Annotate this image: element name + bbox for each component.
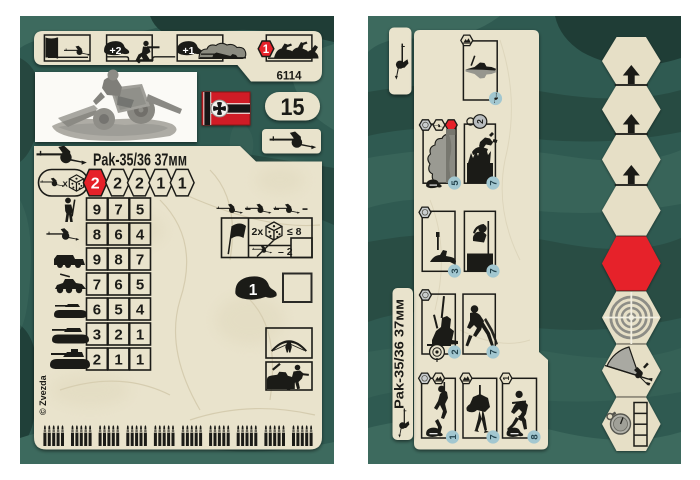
svg-text:2: 2 xyxy=(135,176,144,193)
svg-text:x: x xyxy=(63,179,69,190)
svg-text:2: 2 xyxy=(114,327,122,344)
svg-text:1: 1 xyxy=(156,176,165,193)
svg-text:2: 2 xyxy=(113,176,122,193)
svg-text:3: 3 xyxy=(93,327,101,344)
svg-text:1: 1 xyxy=(502,376,511,381)
svg-text:8: 8 xyxy=(529,434,540,439)
svg-text:1: 1 xyxy=(178,176,187,193)
svg-text:1: 1 xyxy=(263,44,270,56)
svg-text:1: 1 xyxy=(448,434,459,440)
svg-text:5: 5 xyxy=(136,202,144,219)
svg-text:2: 2 xyxy=(91,176,100,193)
svg-text:8: 8 xyxy=(114,252,122,269)
svg-text:7: 7 xyxy=(488,349,499,354)
svg-text:2: 2 xyxy=(93,352,101,369)
svg-text:≤ 8: ≤ 8 xyxy=(287,226,302,238)
svg-text:4: 4 xyxy=(136,302,145,319)
svg-text:7: 7 xyxy=(488,434,499,439)
svg-text:Pak-35/36 37мм: Pak-35/36 37мм xyxy=(93,150,187,170)
svg-text:5: 5 xyxy=(450,180,461,186)
svg-text:6: 6 xyxy=(93,302,101,319)
svg-text:9: 9 xyxy=(93,252,101,269)
svg-text:5: 5 xyxy=(114,302,122,319)
svg-text:2x: 2x xyxy=(252,226,264,238)
svg-text:1: 1 xyxy=(136,352,144,369)
svg-text:7: 7 xyxy=(114,202,122,219)
svg-text:3: 3 xyxy=(450,268,461,273)
svg-text:Pak-35/36 37мм: Pak-35/36 37мм xyxy=(393,299,407,409)
svg-text:+2: +2 xyxy=(110,45,122,57)
svg-text:2: 2 xyxy=(475,119,485,124)
svg-text:6: 6 xyxy=(114,277,122,294)
svg-text:2: 2 xyxy=(450,349,461,354)
svg-text:6114: 6114 xyxy=(277,71,303,83)
svg-text:7: 7 xyxy=(136,252,144,269)
svg-text:1: 1 xyxy=(136,327,144,344)
svg-text:+1: +1 xyxy=(183,45,195,57)
svg-text:7: 7 xyxy=(93,277,101,294)
svg-text:© Zvezda: © Zvezda xyxy=(38,374,48,415)
svg-text:8: 8 xyxy=(93,227,101,244)
svg-text:7: 7 xyxy=(488,268,499,273)
svg-text:15: 15 xyxy=(281,93,305,121)
svg-text:7: 7 xyxy=(488,180,499,185)
svg-text:– 2: – 2 xyxy=(278,246,293,258)
svg-text:1: 1 xyxy=(249,282,258,299)
svg-text:6: 6 xyxy=(114,227,122,244)
svg-text:4: 4 xyxy=(136,227,145,244)
svg-text:9: 9 xyxy=(93,202,101,219)
svg-text:1: 1 xyxy=(114,352,122,369)
svg-text:5: 5 xyxy=(136,277,144,294)
